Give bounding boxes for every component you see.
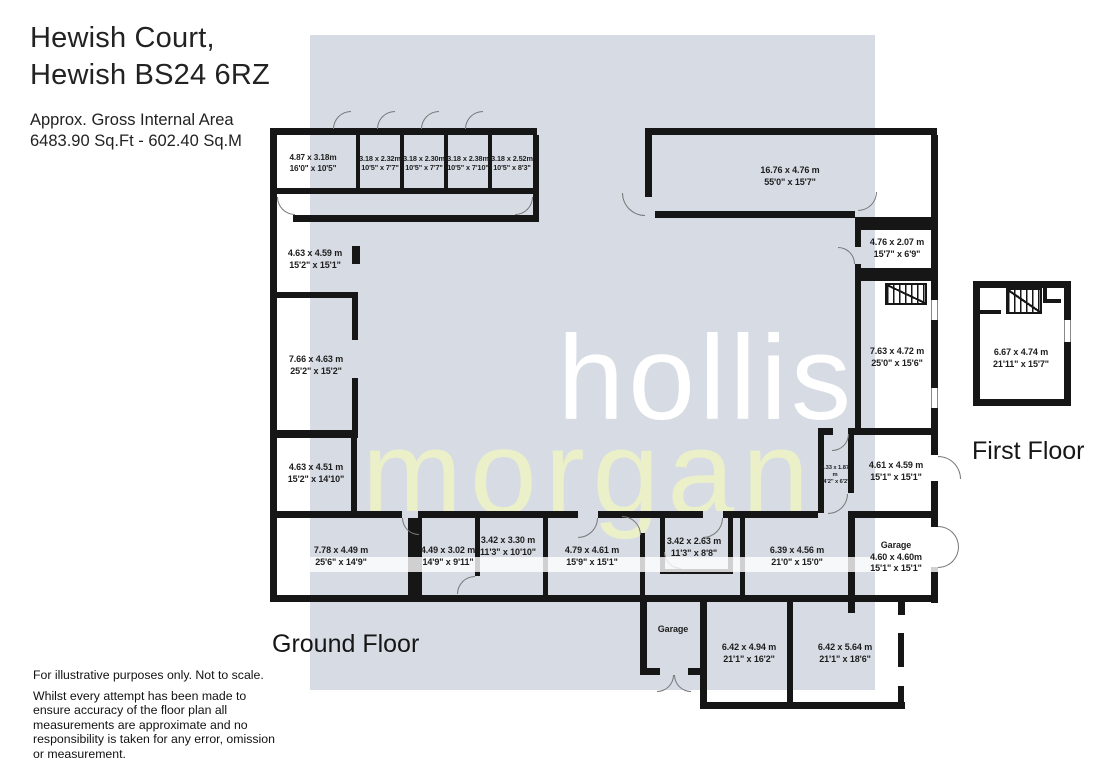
window-icon <box>931 300 938 320</box>
open-boundary-dash <box>898 633 904 667</box>
wall <box>848 511 938 518</box>
room-label: 4.33 x 1.87 m14'2" x 6'2" <box>818 465 852 486</box>
wall <box>1064 281 1071 406</box>
floorplan-page: hollis morgan Hewish Court,Hewish BS24 6… <box>0 0 1100 778</box>
wall <box>270 430 358 438</box>
wall <box>979 310 1001 314</box>
ground-floor-label: Ground Floor <box>272 630 419 659</box>
room-label: Garage <box>643 624 703 636</box>
wall <box>861 268 938 281</box>
room-label: 3.42 x 3.30 m11'3" x 10'10" <box>463 535 553 558</box>
stairs-diagonal <box>1008 290 1040 312</box>
door-arc-icon <box>938 456 961 479</box>
wall <box>855 217 938 230</box>
wall <box>352 378 358 436</box>
open-boundary-dash <box>898 686 904 704</box>
window-icon <box>931 388 938 408</box>
wall <box>645 128 937 135</box>
wall <box>270 128 537 135</box>
stairs-diagonal <box>887 285 925 303</box>
room-label: 7.63 x 4.72 m25'0" x 15'6" <box>855 346 939 369</box>
room-label: 4.76 x 2.07 m15'7" x 6'9" <box>855 237 939 260</box>
room-label: 6.39 x 4.56 m21'0" x 15'0" <box>752 545 842 568</box>
room-label: 16.76 x 4.76 m55'0" x 15'7" <box>730 165 850 188</box>
wall <box>352 292 358 340</box>
wall <box>645 135 652 197</box>
room-label: 3.18 x 2.52m10'5" x 8'3" <box>489 154 535 173</box>
room-label: 3.18 x 2.32m10'5" x 7'7" <box>357 154 403 173</box>
header: Hewish Court,Hewish BS24 6RZ Approx. Gro… <box>30 20 270 153</box>
room-label: 7.66 x 4.63 m25'2" x 15'2" <box>271 354 361 377</box>
room-label: 4.63 x 4.59 m15'2" x 15'1" <box>270 248 360 271</box>
room-label: 7.78 x 4.49 m25'6" x 14'9" <box>296 545 386 568</box>
disclaimer-line1: For illustrative purposes only. Not to s… <box>33 668 283 683</box>
room-label: 6.42 x 5.64 m21'1" x 18'6" <box>800 642 890 665</box>
disclaimer-line2: Whilst every attempt has been made to en… <box>33 689 283 762</box>
door-arc-icon <box>277 197 295 215</box>
wall <box>848 428 938 435</box>
door-gap <box>578 511 598 518</box>
wall <box>973 281 1071 288</box>
wall <box>270 511 818 518</box>
wall <box>270 188 537 194</box>
disclaimer: For illustrative purposes only. Not to s… <box>33 668 283 767</box>
wall <box>533 135 539 222</box>
stairs-icon <box>1006 288 1042 314</box>
room-label: 3.18 x 2.38m10'5" x 7'10" <box>445 154 491 173</box>
door-gap <box>402 511 418 518</box>
room-label: 6.67 x 4.74 m21'11" x 15'7" <box>973 347 1069 370</box>
wall <box>655 211 855 218</box>
door-arc-icon <box>938 547 959 568</box>
door-arc-icon <box>938 526 959 547</box>
room-label: 6.42 x 4.94 m21'1" x 16'2" <box>704 642 794 665</box>
room-label: 4.63 x 4.51 m15'2" x 14'10" <box>271 462 361 485</box>
wall <box>973 399 1071 406</box>
wall <box>640 602 647 672</box>
wall <box>270 292 358 298</box>
wall <box>293 215 537 222</box>
room-label: 3.18 x 2.30m10'5" x 7'7" <box>401 154 447 173</box>
room-label: 4.61 x 4.59 m15'1" x 15'1" <box>854 460 938 483</box>
wall <box>700 702 905 709</box>
wall <box>270 595 938 602</box>
wall <box>1043 299 1061 303</box>
wall <box>640 668 660 675</box>
first-floor-label: First Floor <box>972 437 1085 466</box>
room-label: Garage4.60 x 4.60m15'1" x 15'1" <box>854 540 938 575</box>
gross-internal-area: Approx. Gross Internal Area6483.90 Sq.Ft… <box>30 110 270 154</box>
wall <box>973 281 980 406</box>
room-label: 4.79 x 4.61 m15'9" x 15'1" <box>547 545 637 568</box>
window-icon <box>1064 320 1071 342</box>
room-label: 4.87 x 3.18m16'0" x 10'5" <box>273 153 353 174</box>
stairs-icon <box>885 283 927 305</box>
page-title: Hewish Court,Hewish BS24 6RZ <box>30 20 270 94</box>
door-gap <box>703 511 723 518</box>
wall <box>898 598 905 615</box>
wall <box>931 481 938 527</box>
room-label: 3.42 x 2.63 m11'3" x 8'8" <box>654 536 734 559</box>
